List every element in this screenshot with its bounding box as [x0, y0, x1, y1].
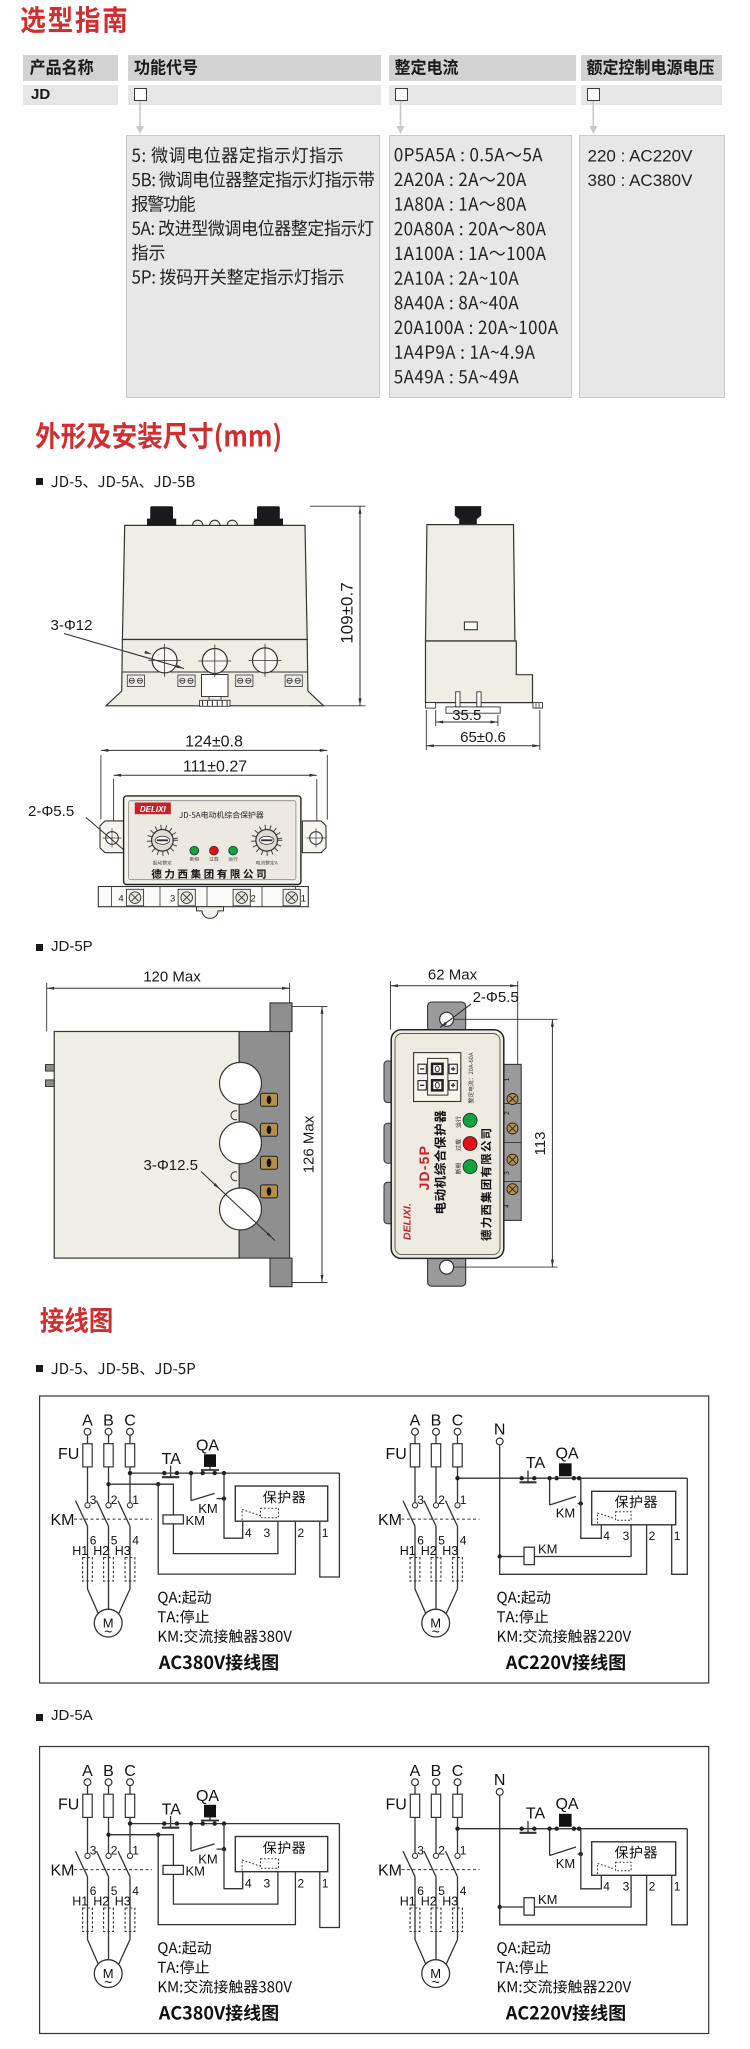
svg-text:1: 1	[504, 1077, 511, 1081]
svg-text:2: 2	[251, 894, 256, 905]
svg-text:220 : AC220V: 220 : AC220V	[588, 146, 694, 165]
svg-text:3-Φ12: 3-Φ12	[51, 617, 93, 634]
svg-text:120 Max: 120 Max	[143, 969, 201, 986]
svg-text:380 : AC380V: 380 : AC380V	[588, 171, 694, 190]
svg-text:35.5: 35.5	[452, 707, 481, 724]
svg-text:JD-5P: JD-5P	[416, 1145, 432, 1191]
svg-text:4: 4	[504, 1204, 511, 1208]
svg-text:124±0.8: 124±0.8	[185, 734, 243, 751]
svg-text:62 Max: 62 Max	[428, 967, 478, 984]
svg-text:2-Φ5.5: 2-Φ5.5	[473, 989, 519, 1006]
svg-text:3: 3	[170, 894, 175, 905]
svg-text:2-Φ5.5: 2-Φ5.5	[28, 803, 74, 820]
svg-text:109±0.7: 109±0.7	[338, 582, 357, 643]
svg-text:126 Max: 126 Max	[301, 1115, 318, 1173]
svg-text:DELIXI: DELIXI	[140, 805, 167, 814]
svg-text:3: 3	[504, 1171, 511, 1175]
svg-text:3-Φ12.5: 3-Φ12.5	[144, 1157, 199, 1174]
svg-text:2: 2	[504, 1111, 511, 1115]
svg-text:1: 1	[301, 894, 306, 905]
svg-text:65±0.6: 65±0.6	[460, 729, 506, 746]
svg-text:111±0.27: 111±0.27	[183, 759, 247, 776]
svg-text:113: 113	[532, 1132, 549, 1156]
svg-text:4: 4	[118, 894, 123, 905]
svg-text:DELIXI.: DELIXI.	[402, 1203, 414, 1240]
